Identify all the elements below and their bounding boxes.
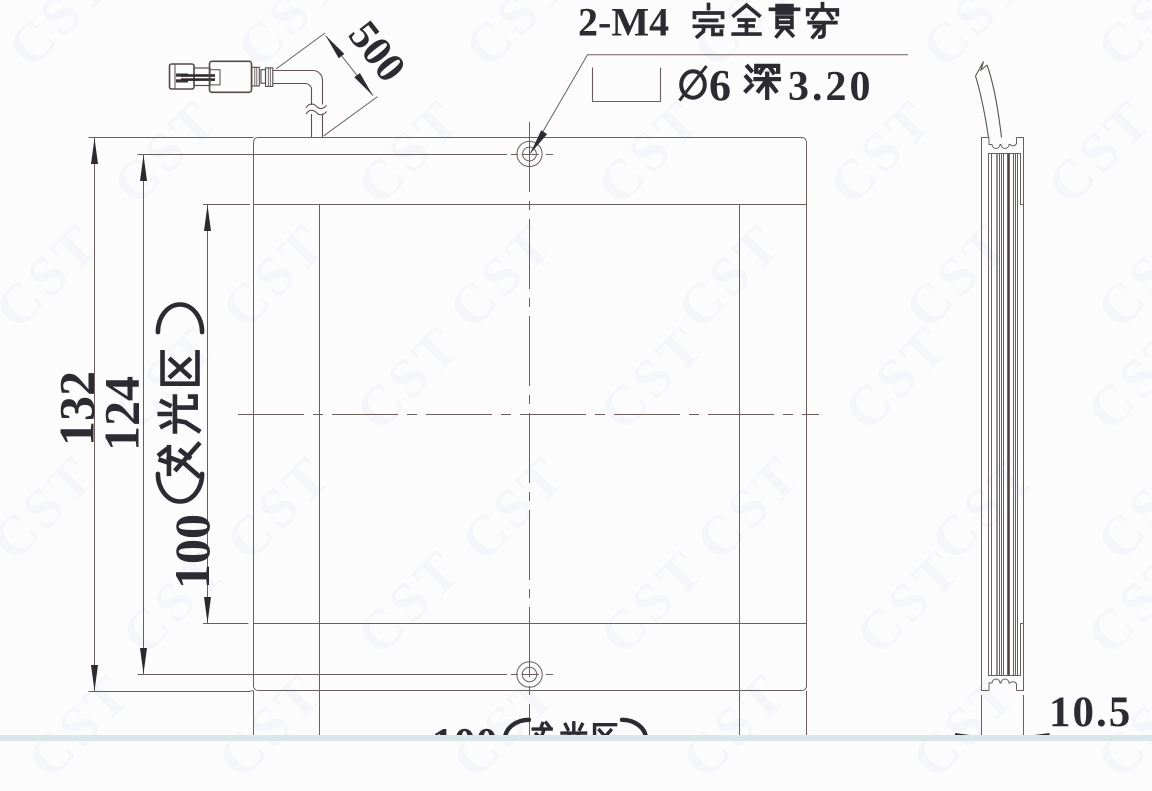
svg-text:500: 500	[339, 13, 414, 91]
svg-text:100: 100	[164, 514, 220, 589]
svg-text:6: 6	[709, 61, 731, 110]
svg-text:10.5: 10.5	[1049, 689, 1132, 736]
svg-text:124: 124	[94, 376, 150, 451]
svg-text:3.20: 3.20	[788, 64, 874, 110]
svg-text:2-M4: 2-M4	[578, 0, 669, 45]
